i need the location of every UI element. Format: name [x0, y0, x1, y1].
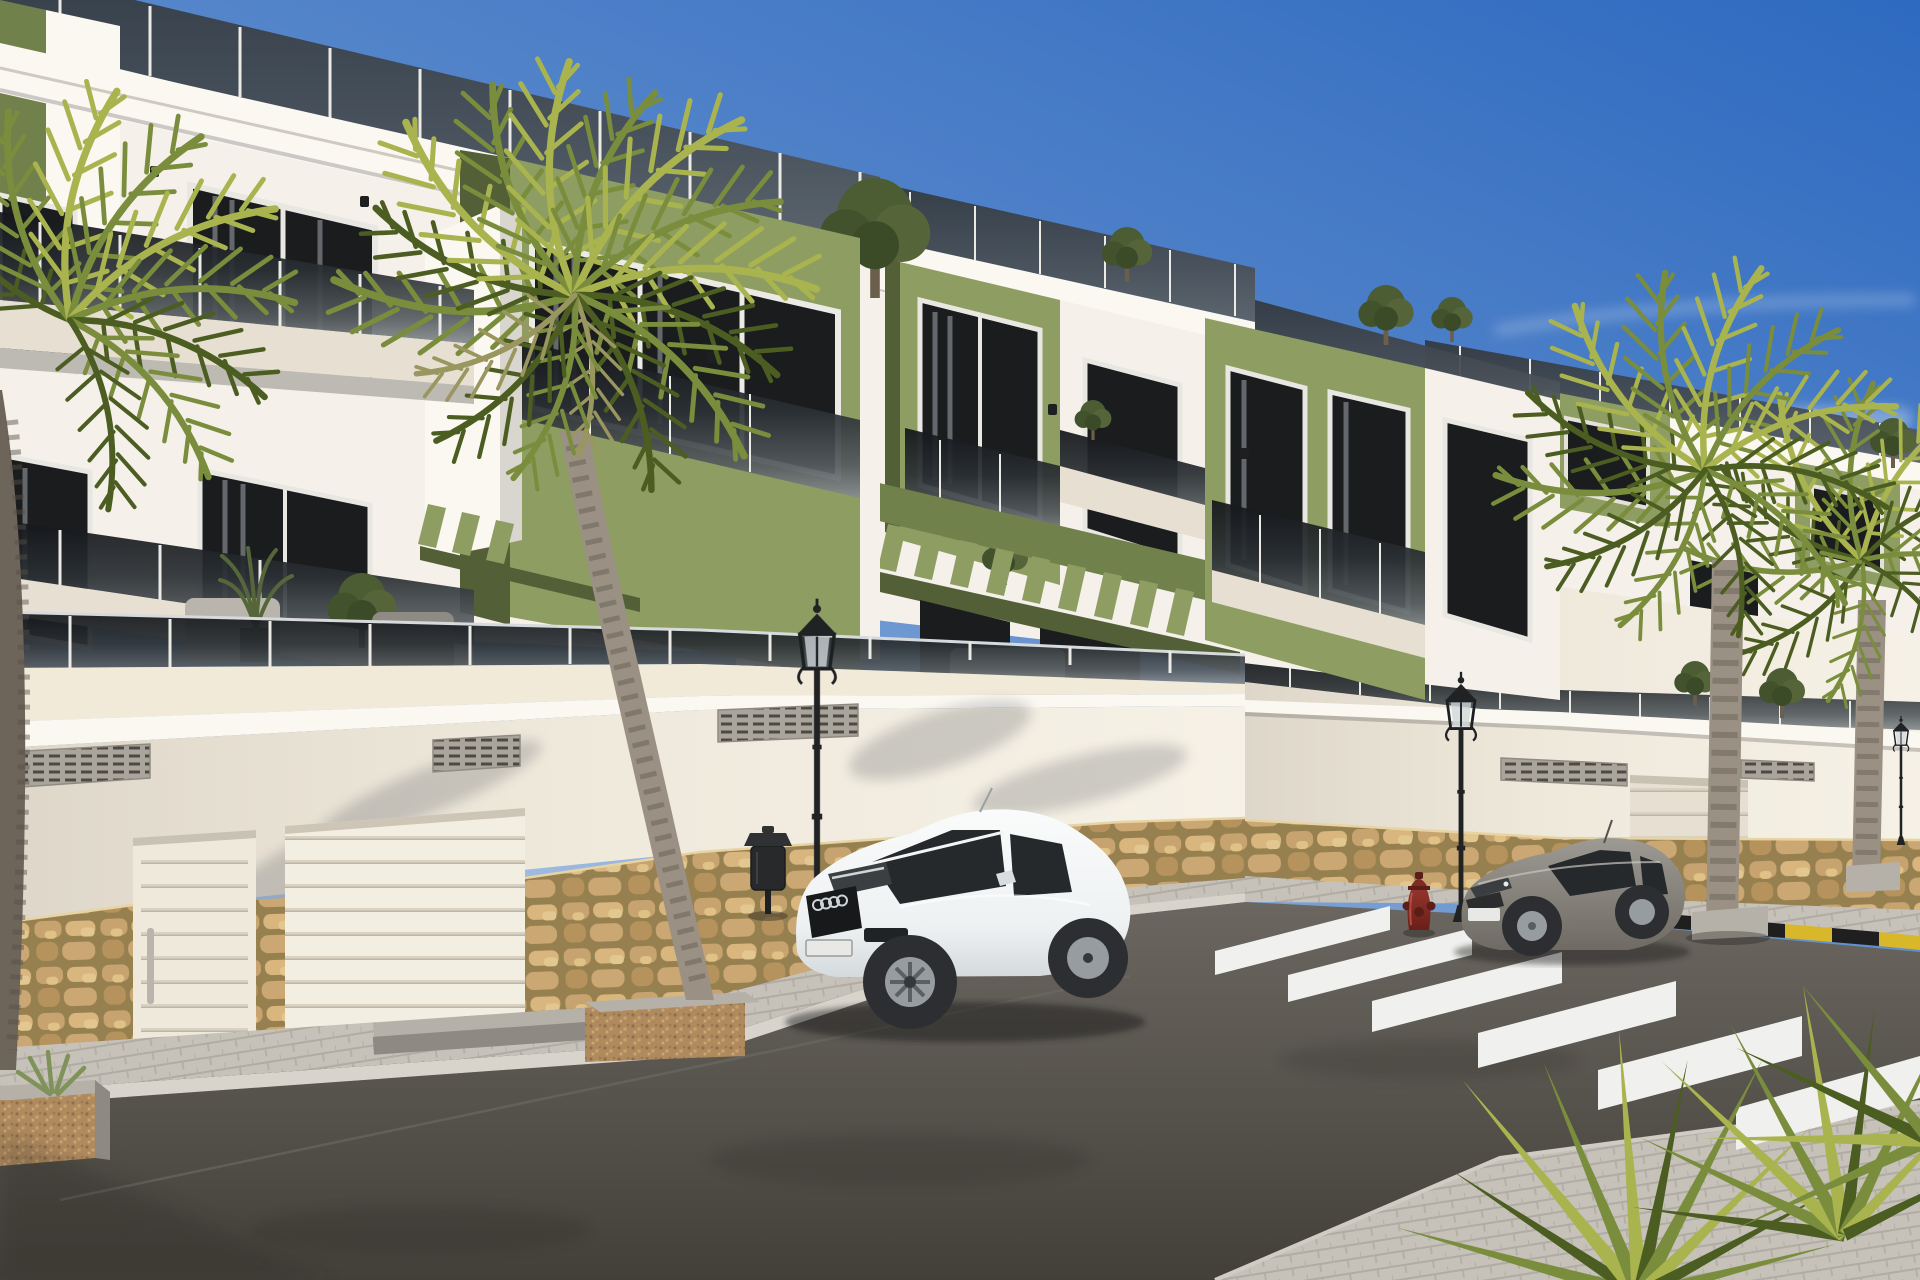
- garage-vent-grille: [1741, 760, 1814, 781]
- rendered-photo: New-build apartment complex street view: [0, 0, 1920, 1280]
- license-plate: [1468, 908, 1500, 921]
- pedestrian-door: [133, 830, 256, 1048]
- garage-door-1: [285, 808, 525, 1042]
- garage-vent-grille: [433, 735, 520, 772]
- garage-vent-grille: [718, 704, 858, 742]
- green-accent-box: [1205, 318, 1425, 700]
- license-plate: [806, 940, 852, 956]
- door-handle: [147, 928, 154, 1004]
- scene-canvas: New-build apartment complex street view: [0, 0, 1920, 1280]
